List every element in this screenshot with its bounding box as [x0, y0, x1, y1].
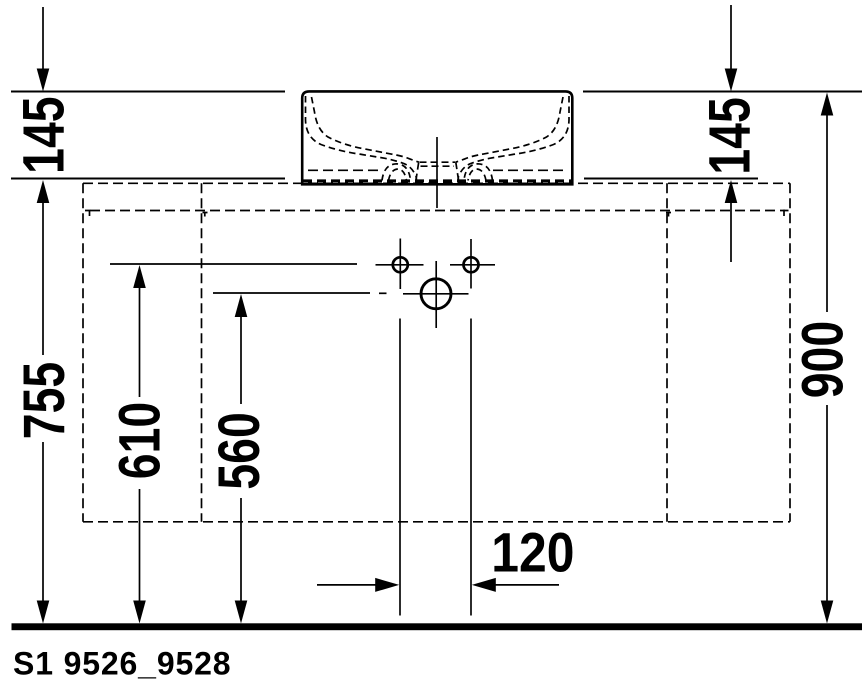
svg-text:120: 120 [491, 522, 574, 584]
svg-text:S1 9526_9528: S1 9526_9528 [13, 646, 231, 682]
svg-text:145: 145 [11, 96, 76, 173]
svg-text:755: 755 [12, 362, 77, 439]
svg-text:610: 610 [107, 402, 172, 479]
svg-text:560: 560 [207, 412, 272, 489]
svg-text:900: 900 [791, 321, 856, 398]
svg-text:145: 145 [697, 97, 762, 174]
